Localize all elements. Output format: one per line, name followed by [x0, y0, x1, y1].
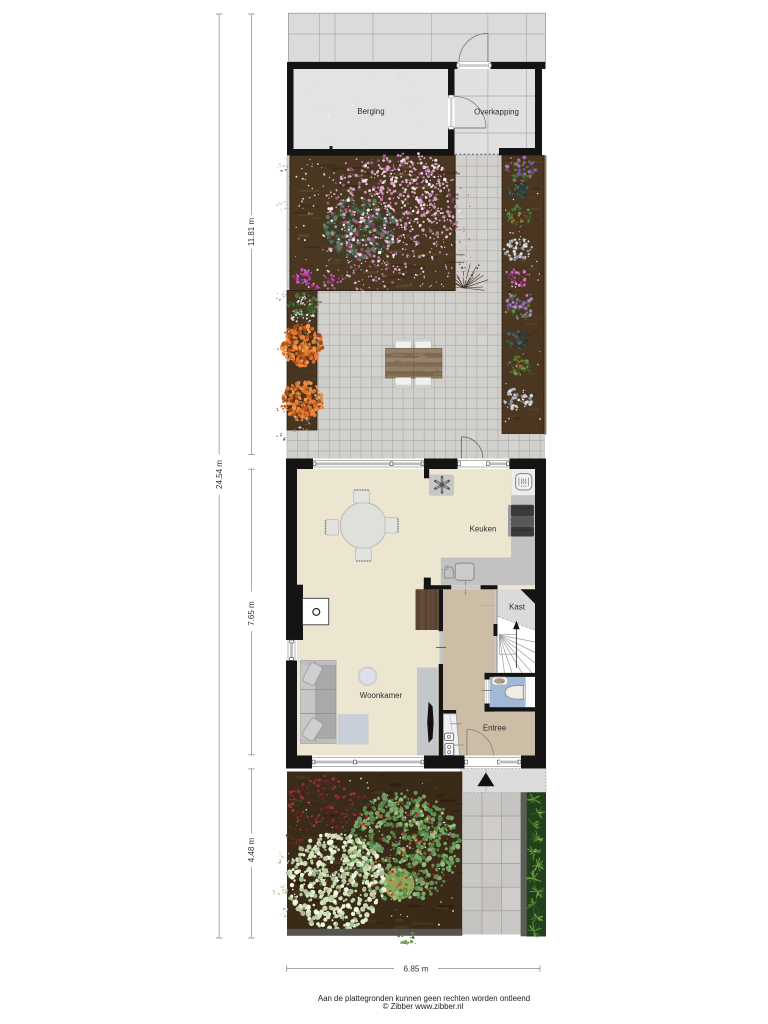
svg-text:Overkapping: Overkapping — [474, 108, 519, 117]
svg-text:6.85 m: 6.85 m — [403, 964, 428, 973]
svg-text:Kast: Kast — [509, 603, 526, 612]
svg-text:Entree: Entree — [483, 724, 507, 733]
svg-text:24.54 m: 24.54 m — [215, 460, 224, 489]
svg-text:© Zibber www.zibber.nl: © Zibber www.zibber.nl — [383, 1002, 464, 1011]
svg-text:11.81 m: 11.81 m — [247, 218, 256, 247]
svg-text:Woonkamer: Woonkamer — [360, 691, 403, 700]
svg-text:Berging: Berging — [357, 107, 384, 116]
svg-text:Keuken: Keuken — [470, 525, 497, 534]
svg-text:7.65 m: 7.65 m — [247, 601, 256, 626]
svg-text:4.48 m: 4.48 m — [247, 837, 256, 862]
